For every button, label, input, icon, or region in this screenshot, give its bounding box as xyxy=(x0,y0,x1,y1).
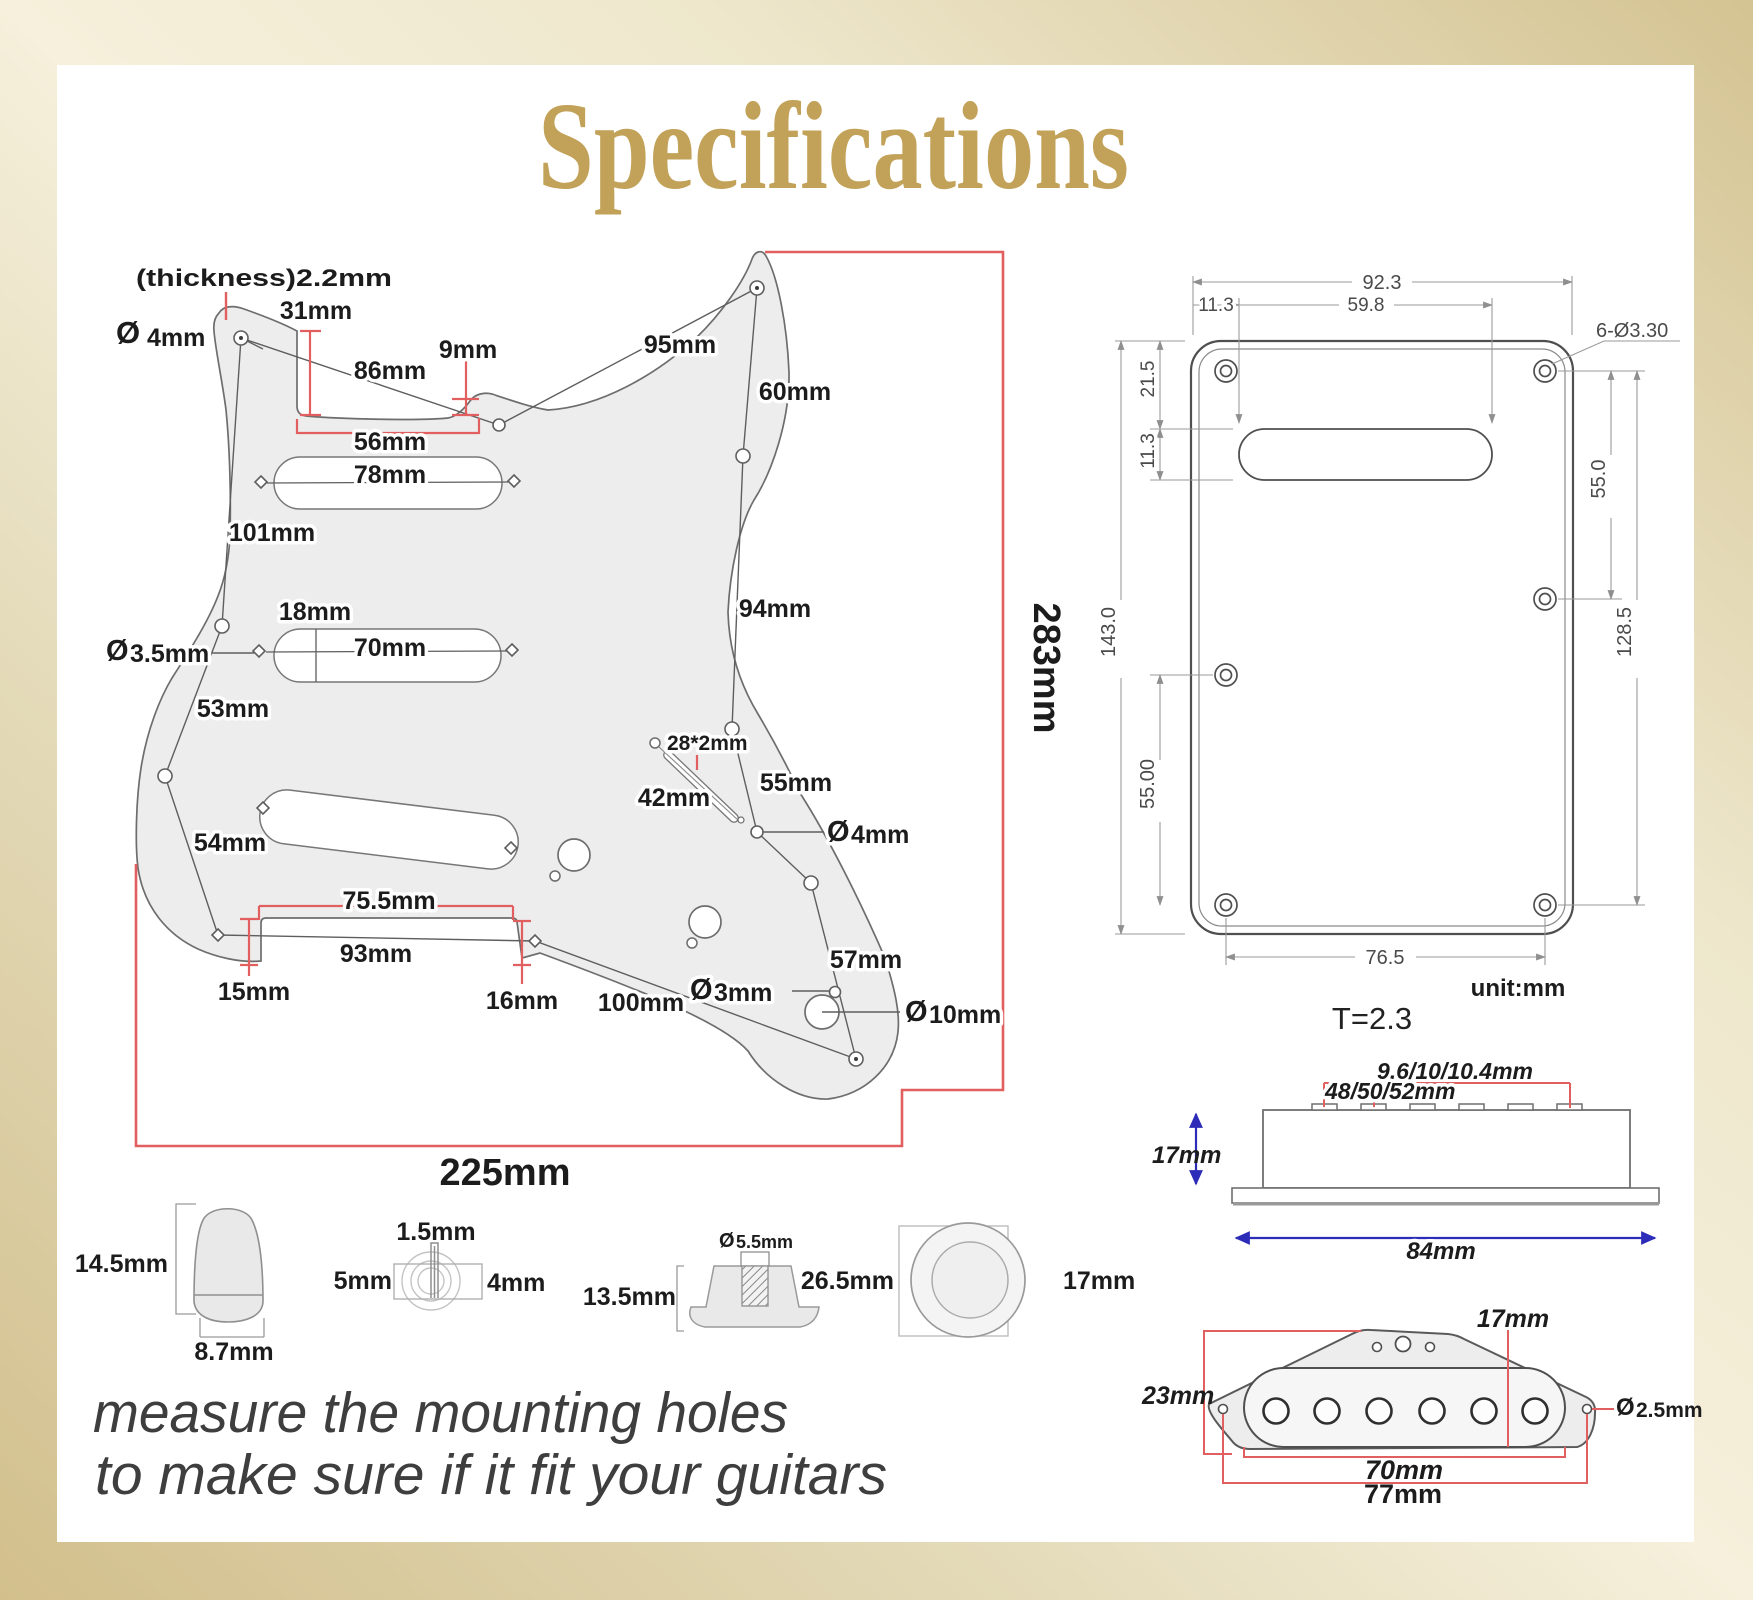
svg-text:unit:mm: unit:mm xyxy=(1471,975,1566,1002)
svg-text:48/50/52mm: 48/50/52mm xyxy=(1324,1078,1455,1104)
svg-text:21.5: 21.5 xyxy=(1138,361,1159,398)
svg-text:225mm: 225mm xyxy=(440,1152,571,1194)
svg-text:5mm: 5mm xyxy=(334,1267,392,1295)
svg-text:17mm: 17mm xyxy=(1477,1305,1549,1333)
svg-text:3mm: 3mm xyxy=(714,979,772,1007)
svg-text:56mm: 56mm xyxy=(354,428,426,456)
svg-text:9mm: 9mm xyxy=(439,336,497,364)
svg-text:100mm: 100mm xyxy=(598,989,684,1017)
svg-text:76.5: 76.5 xyxy=(1366,947,1405,969)
svg-text:18mm: 18mm xyxy=(279,598,351,626)
svg-text:11.3: 11.3 xyxy=(1198,295,1234,316)
svg-text:84mm: 84mm xyxy=(1406,1238,1475,1265)
svg-text:16mm: 16mm xyxy=(486,987,558,1015)
svg-text:143.0: 143.0 xyxy=(1098,607,1120,657)
svg-text:8.7mm: 8.7mm xyxy=(194,1338,273,1366)
svg-text:11.3: 11.3 xyxy=(1138,433,1159,469)
svg-text:Ø: Ø xyxy=(106,635,129,667)
svg-text:10mm: 10mm xyxy=(929,1001,1001,1029)
svg-text:17mm: 17mm xyxy=(1063,1267,1135,1295)
svg-text:15mm: 15mm xyxy=(218,978,290,1006)
svg-text:42mm: 42mm xyxy=(638,784,710,812)
svg-text:Ø: Ø xyxy=(827,816,850,848)
svg-text:Specifications: Specifications xyxy=(538,78,1129,216)
svg-text:95mm: 95mm xyxy=(644,331,716,359)
svg-text:14.5mm: 14.5mm xyxy=(75,1250,168,1278)
svg-text:measure the mounting holes: measure the mounting holes xyxy=(93,1381,788,1445)
svg-text:3.5mm: 3.5mm xyxy=(130,640,209,668)
svg-text:283mm: 283mm xyxy=(1025,603,1067,734)
svg-text:5.5mm: 5.5mm xyxy=(736,1232,793,1252)
svg-text:Ø: Ø xyxy=(905,996,928,1028)
svg-text:26.5mm: 26.5mm xyxy=(801,1267,894,1295)
svg-text:78mm: 78mm xyxy=(354,461,426,489)
svg-text:55.00: 55.00 xyxy=(1137,759,1159,809)
svg-text:93mm: 93mm xyxy=(340,940,412,968)
svg-text:77mm: 77mm xyxy=(1364,1479,1442,1509)
svg-text:4mm: 4mm xyxy=(147,324,205,352)
svg-text:60mm: 60mm xyxy=(759,378,831,406)
svg-text:31mm: 31mm xyxy=(280,297,352,325)
svg-text:Ø: Ø xyxy=(690,974,713,1006)
svg-text:1.5mm: 1.5mm xyxy=(396,1218,475,1246)
svg-text:54mm: 54mm xyxy=(194,829,266,857)
svg-text:128.5: 128.5 xyxy=(1614,607,1636,657)
svg-text:6-Ø3.30: 6-Ø3.30 xyxy=(1596,320,1668,342)
svg-text:4mm: 4mm xyxy=(851,821,909,849)
svg-text:23mm: 23mm xyxy=(1141,1382,1214,1410)
svg-text:(thickness)2.2mm: (thickness)2.2mm xyxy=(136,265,392,292)
svg-text:T=2.3: T=2.3 xyxy=(1332,1001,1412,1036)
svg-text:to make sure if it fit your gu: to make sure if it fit your guitars xyxy=(95,1443,887,1507)
svg-text:Ø: Ø xyxy=(116,315,140,350)
svg-text:59.8: 59.8 xyxy=(1348,295,1385,316)
svg-text:13.5mm: 13.5mm xyxy=(583,1283,676,1311)
svg-text:101mm: 101mm xyxy=(229,519,315,547)
svg-text:86mm: 86mm xyxy=(354,357,426,385)
svg-text:Ø: Ø xyxy=(719,1230,735,1252)
svg-text:Ø: Ø xyxy=(1616,1394,1635,1421)
svg-text:2.5mm: 2.5mm xyxy=(1636,1399,1703,1422)
svg-text:28*2mm: 28*2mm xyxy=(667,732,748,755)
svg-text:70mm: 70mm xyxy=(354,634,426,662)
svg-text:92.3: 92.3 xyxy=(1363,272,1402,294)
svg-text:94mm: 94mm xyxy=(739,595,811,623)
svg-text:4mm: 4mm xyxy=(487,1269,545,1297)
svg-text:53mm: 53mm xyxy=(197,695,269,723)
svg-text:55.0: 55.0 xyxy=(1588,460,1610,499)
svg-text:55mm: 55mm xyxy=(760,769,832,797)
svg-text:17mm: 17mm xyxy=(1152,1142,1221,1169)
svg-text:57mm: 57mm xyxy=(830,946,902,974)
svg-text:75.5mm: 75.5mm xyxy=(342,887,435,915)
